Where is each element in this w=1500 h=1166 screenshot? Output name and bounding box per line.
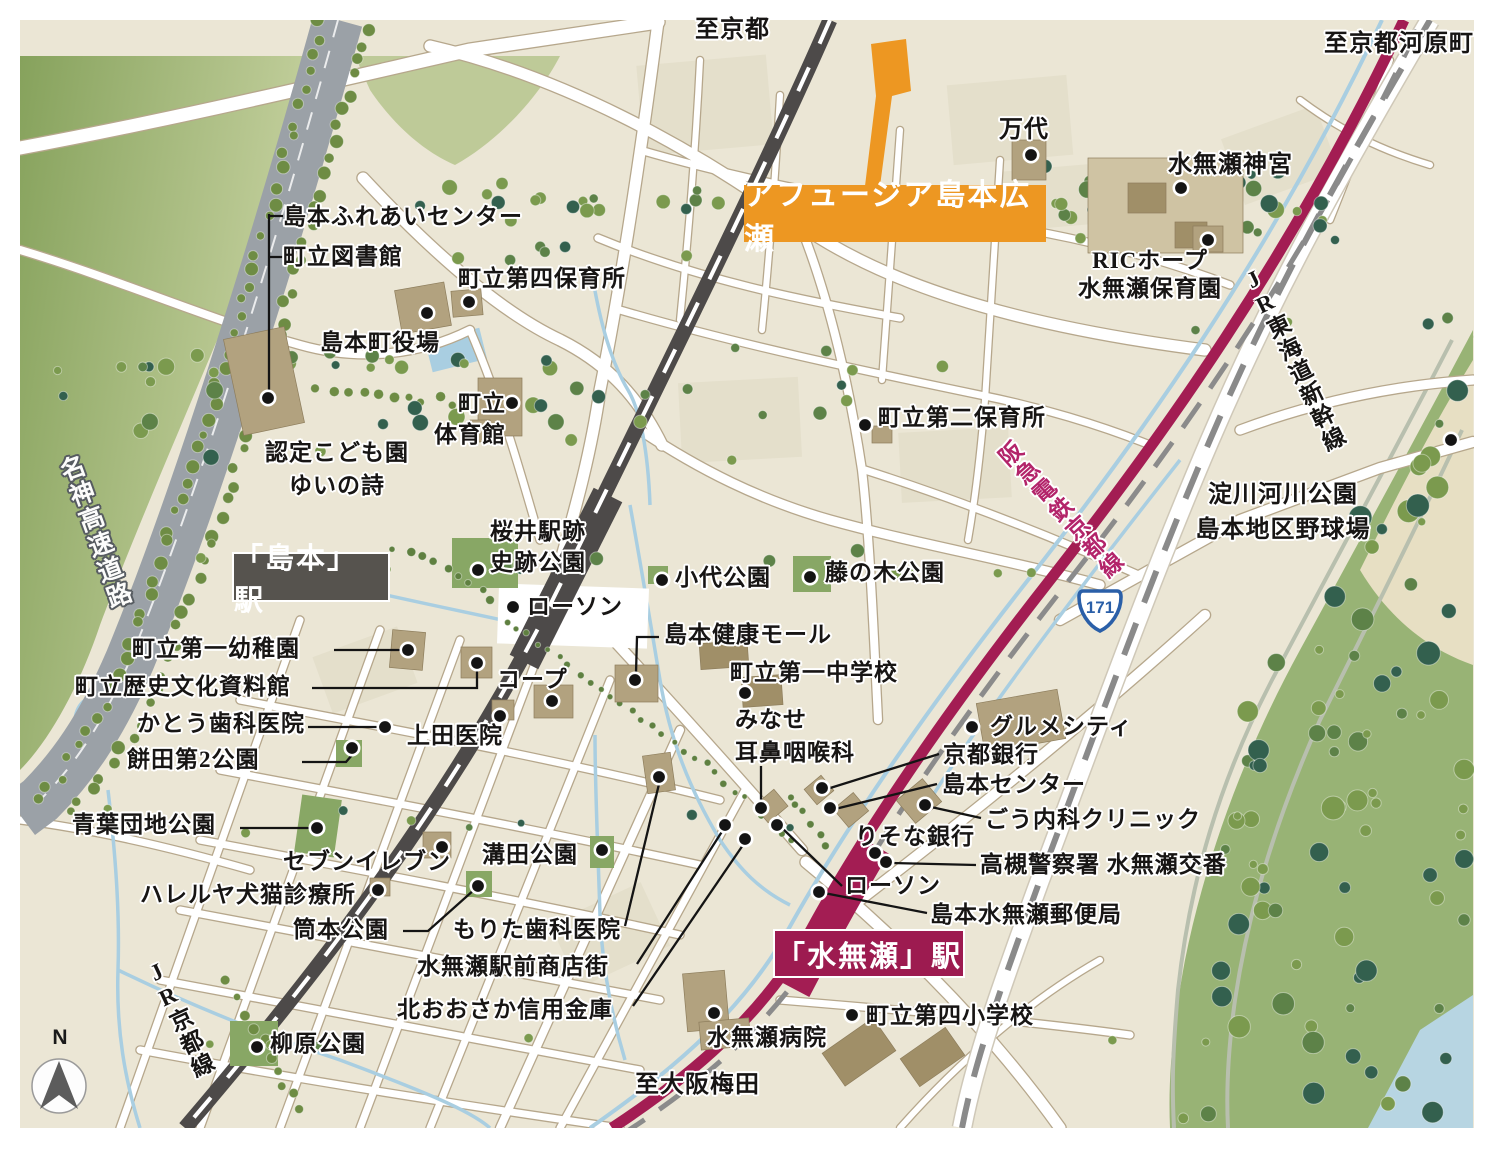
poi-label-morita-shika: もりた歯科医院 — [453, 916, 621, 944]
poi-label-kato-shika: かとう歯科医院 — [137, 710, 305, 738]
poi-label-gourmet-city: グルメシティ — [990, 713, 1133, 741]
poi-label-dai1-yochien: 町立第一幼稚園 — [132, 635, 300, 663]
poi-label-fujinoki-koen: 藤の木公園 — [825, 559, 945, 587]
poi-label-minase-shotengai: 水無瀬駅前商店街 — [417, 953, 609, 981]
direction-to-osaka-umeda: 至大阪梅田 — [635, 1071, 760, 1100]
map-screenshot: 至京都 至京都河原町 至大阪梅田 アフュージア島本広瀬 「島本」駅 「水無瀬」駅… — [0, 0, 1500, 1166]
station-label-minase: 「水無瀬」駅 — [773, 929, 965, 978]
direction-to-kyoto: 至京都 — [695, 16, 770, 45]
project-label: アフュージア島本広瀬 — [744, 185, 1046, 242]
poi-label-kita-osaka-shinkin: 北おおさか信用金庫 — [397, 996, 613, 1024]
poi-label-lawson-north: ローソン — [527, 593, 623, 621]
poi-label-resona-bank: りそな銀行 — [855, 823, 975, 851]
poi-label-town-library: 町立図書館 — [283, 243, 403, 271]
poi-label-mizota-koen: 溝田公園 — [482, 841, 578, 869]
poi-label-sakurai-park: 桜井駅跡史跡公園 — [490, 516, 586, 578]
poi-label-yodogawa-park: 淀川河川公園島本地区野球場 — [1163, 478, 1403, 548]
poi-label-koshiro-koen: 小代公園 — [675, 564, 771, 592]
poi-label-aoba-danchi-koen: 青葉団地公園 — [72, 811, 216, 839]
poi-label-go-naika-clinic: ごう内科クリニック — [985, 806, 1201, 834]
poi-label-dai1-chugakko: 町立第一中学校 — [730, 659, 898, 687]
poi-label-lawson-south: ローソン — [845, 872, 941, 900]
poi-label-yakuba: 島本町役場 — [320, 329, 440, 357]
poi-label-tsutsumoto-koen: 筒本公園 — [293, 916, 389, 944]
poi-label-seven-eleven: セブンイレブン — [283, 848, 451, 876]
poi-label-ric-hope: RICホープ水無瀬保育園 — [1040, 247, 1260, 303]
poi-label-dai2-hoikusho: 町立第二保育所 — [878, 404, 1046, 432]
poi-label-minase-byoin: 水無瀬病院 — [707, 1024, 827, 1052]
poi-label-post-office: 島本水無瀬郵便局 — [930, 901, 1122, 929]
compass-north-label: N — [44, 1026, 76, 1050]
poi-label-kyoto-bank: 京都銀行 — [943, 741, 1039, 769]
poi-label-rekishi-shiryokan: 町立歴史文化資料館 — [75, 673, 291, 701]
poi-label-hallelujah-clinic: ハレルヤ犬猫診療所 — [140, 881, 356, 909]
poi-label-minase-koban: 高槻警察署 水無瀬交番 — [980, 851, 1227, 879]
poi-label-shimamoto-center: 島本センター — [942, 771, 1086, 799]
station-label-shimamoto: 「島本」駅 — [232, 552, 390, 602]
route-171-shield-number: 171 — [1077, 598, 1123, 618]
direction-to-kyoto-kawaramachi: 至京都河原町 — [1324, 30, 1474, 59]
poi-label-minase-jingu: 水無瀬神宮 — [1168, 151, 1293, 180]
poi-label-mandai: 万代 — [999, 116, 1049, 145]
poi-label-dai4-hoikusho: 町立第四保育所 — [458, 265, 626, 293]
poi-label-mochida-koen: 餅田第2公園 — [127, 746, 260, 774]
poi-label-kenko-mall: 島本健康モール — [664, 621, 832, 649]
poi-label-yanagihara-koen: 柳原公園 — [270, 1030, 366, 1058]
poi-label-ueda-iin: 上田医院 — [407, 722, 503, 750]
poi-label-fureai-center: 島本ふれあいセンター — [283, 203, 523, 231]
poi-label-coop: コープ — [497, 666, 568, 694]
poi-label-minase-jibika: みなせ耳鼻咽喉科 — [735, 703, 855, 769]
poi-label-taiikukan: 町立体育館 — [420, 388, 506, 450]
poi-label-kodomoen: 認定こども園ゆいの詩 — [262, 436, 412, 502]
poi-label-dai4-shogakko: 町立第四小学校 — [866, 1002, 1034, 1030]
